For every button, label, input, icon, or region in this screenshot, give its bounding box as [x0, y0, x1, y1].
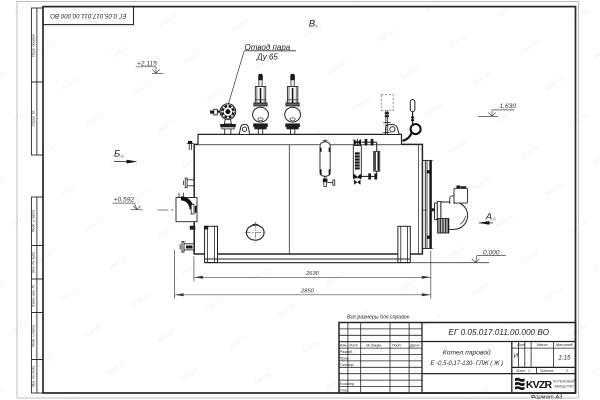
svg-text:Масса: Масса [537, 343, 548, 347]
svg-text:Перв. примен.: Перв. примен. [32, 33, 36, 57]
svg-text:В: В [309, 19, 316, 30]
svg-text:1: 1 [528, 369, 530, 373]
svg-text:КОТЕЛЬНЫЙ: КОТЕЛЬНЫЙ [553, 380, 575, 384]
svg-text:Ду 65: Ду 65 [256, 52, 278, 61]
svg-text:KVZR: KVZR [526, 379, 553, 391]
svg-text:Т.контр.: Т.контр. [340, 363, 355, 367]
svg-text:2850: 2850 [300, 289, 315, 295]
svg-text:Взам. инв. №: Взам. инв. № [32, 284, 36, 306]
svg-text:Дата: Дата [409, 344, 419, 348]
svg-text:Лист: Лист [348, 344, 358, 348]
svg-text:Подп. и дата: Подп. и дата [32, 325, 36, 348]
svg-text:2630: 2630 [305, 271, 320, 277]
svg-text:ЕГ 0.05.017.011.00.000 ВО: ЕГ 0.05.017.011.00.000 ВО [50, 12, 126, 19]
svg-text:Листов: Листов [539, 369, 553, 373]
svg-text:Инв. № подл.: Инв. № подл. [32, 365, 36, 387]
svg-text:1,630: 1,630 [500, 103, 517, 110]
svg-text:+2,115: +2,115 [137, 60, 157, 67]
svg-text:2: 2 [565, 369, 568, 373]
svg-text:Лит.: Лит. [516, 343, 525, 347]
svg-text:Б: Б [114, 149, 120, 160]
svg-text:Подп.: Подп. [392, 344, 402, 348]
svg-text:И: И [514, 354, 519, 360]
svg-text:Изм.: Изм. [340, 344, 348, 348]
svg-text:Подп. и дата: Подп. и дата [32, 210, 36, 233]
svg-text:Все размеры для справок: Все размеры для справок [347, 315, 410, 321]
svg-text:Инв. № дубл.: Инв. № дубл. [32, 251, 36, 273]
svg-text:№ докум.: № докум. [366, 344, 382, 348]
svg-text:Справ. №: Справ. № [32, 110, 36, 126]
svg-text:Формат А3: Формат А3 [531, 394, 563, 400]
svg-text:1:15: 1:15 [558, 355, 571, 362]
svg-text:Разраб.: Разраб. [340, 350, 353, 354]
svg-text:ЕГ 0.05.017.011.00.000 ВО: ЕГ 0.05.017.011.00.000 ВО [448, 328, 549, 337]
svg-text:Масштаб: Масштаб [556, 343, 574, 347]
svg-text:Н.контр.: Н.контр. [340, 382, 355, 386]
svg-text:+0,592: +0,592 [114, 197, 135, 204]
svg-text:Лист: Лист [515, 369, 525, 373]
svg-text:ЗАВОД РЭП: ЗАВОД РЭП [554, 384, 574, 388]
svg-text:А: А [485, 212, 492, 223]
svg-text:Утв.: Утв. [340, 388, 348, 392]
svg-text:Е -0,5-0,17-130- ГЛЖ ( Ж ): Е -0,5-0,17-130- ГЛЖ ( Ж ) [431, 361, 504, 367]
svg-text:Пров.: Пров. [340, 356, 349, 360]
svg-text:Котел паровой: Котел паровой [443, 349, 491, 357]
